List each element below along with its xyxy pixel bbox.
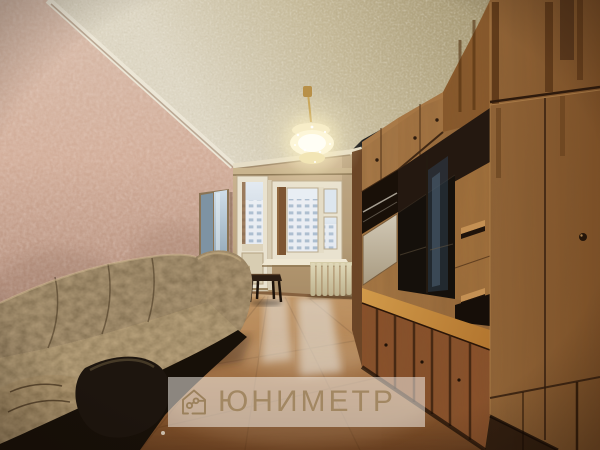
watermark-bar: ЮНИМЕТР (168, 377, 425, 427)
brand-name-text: ЮНИМЕТР (218, 387, 396, 417)
house-route-logo-icon (179, 387, 209, 417)
room-photo: ЮНИМЕТР (0, 0, 600, 450)
